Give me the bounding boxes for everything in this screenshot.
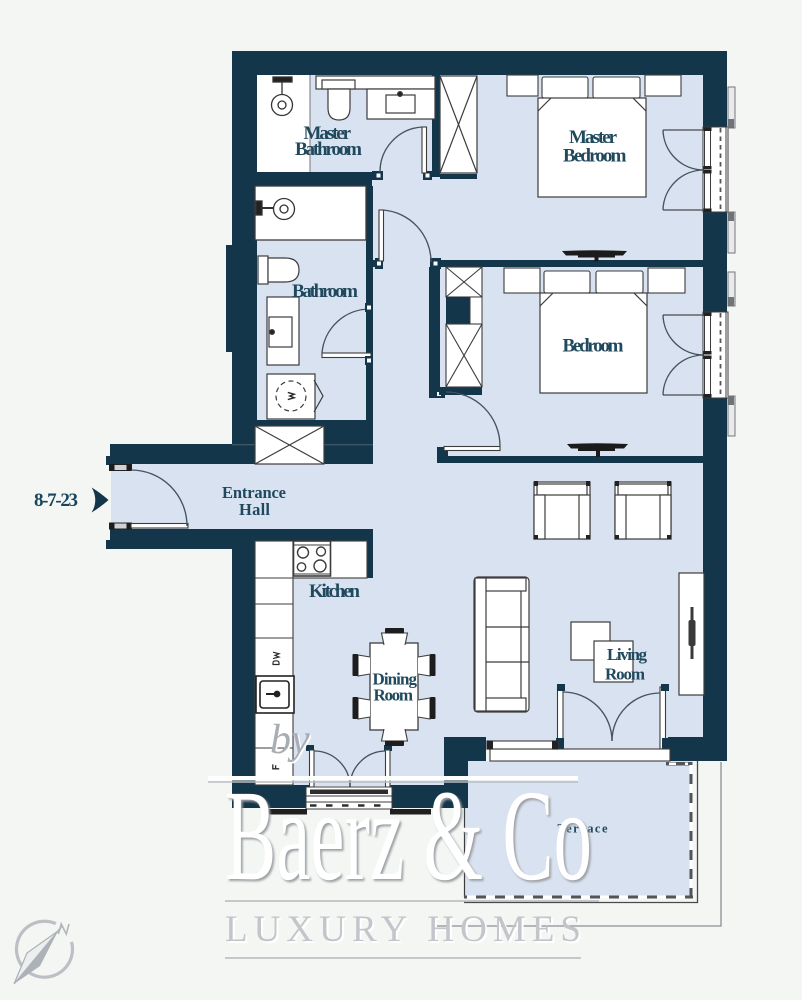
svg-text:Room: Room	[374, 686, 414, 705]
svg-text:Bedroom: Bedroom	[563, 336, 624, 357]
svg-text:Baerz & Co: Baerz & Co	[225, 764, 592, 908]
svg-text:Bathroom: Bathroom	[295, 139, 362, 160]
svg-text:Bedroom: Bedroom	[563, 146, 627, 167]
svg-text:Kitchen: Kitchen	[309, 581, 360, 602]
svg-text:by: by	[270, 717, 310, 763]
svg-text:Living: Living	[607, 645, 648, 664]
svg-text:8-7-23: 8-7-23	[34, 490, 78, 511]
svg-text:Room: Room	[605, 665, 645, 684]
svg-text:Hall: Hall	[239, 500, 270, 519]
svg-text:Bathroom: Bathroom	[292, 281, 358, 302]
